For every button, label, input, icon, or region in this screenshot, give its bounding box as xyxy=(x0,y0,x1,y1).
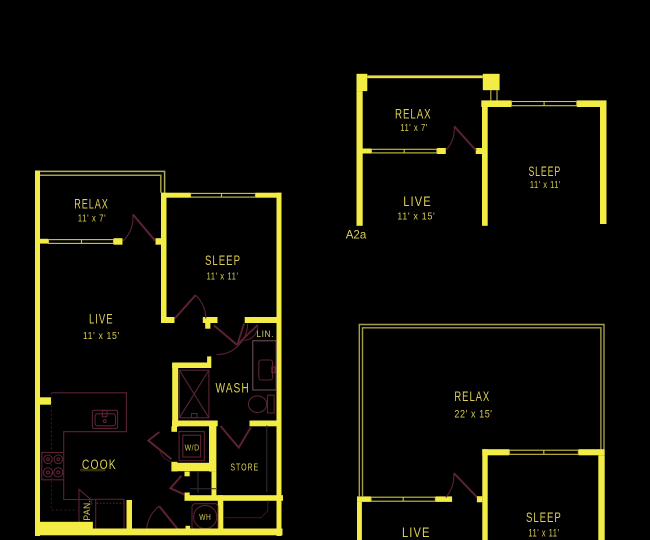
svg-text:RELAX: RELAX xyxy=(454,388,490,404)
svg-text:LIN.: LIN. xyxy=(256,329,274,340)
svg-text:LIVE: LIVE xyxy=(89,311,114,326)
svg-text:11' x 11': 11' x 11' xyxy=(528,527,559,539)
svg-text:11' x 7': 11' x 7' xyxy=(400,122,428,134)
svg-text:SLEEP: SLEEP xyxy=(528,163,561,179)
svg-text:SLEEP: SLEEP xyxy=(526,509,562,525)
svg-text:RELAX: RELAX xyxy=(74,197,109,212)
svg-text:STORE: STORE xyxy=(230,461,259,473)
svg-text:LIVE: LIVE xyxy=(403,193,432,209)
svg-text:PAN.: PAN. xyxy=(82,500,93,521)
svg-text:11' x 7': 11' x 7' xyxy=(78,213,106,224)
svg-text:SLEEP: SLEEP xyxy=(205,253,241,268)
svg-text:11' x 15': 11' x 15' xyxy=(83,331,120,342)
svg-text:11' x 11': 11' x 11' xyxy=(530,179,561,191)
svg-text:11' x 11': 11' x 11' xyxy=(207,272,239,283)
svg-text:11' x 15': 11' x 15' xyxy=(397,211,435,223)
svg-text:22' x 15': 22' x 15' xyxy=(454,409,492,421)
svg-text:RELAX: RELAX xyxy=(395,106,432,122)
svg-text:A2a: A2a xyxy=(346,227,367,241)
svg-text:W/D: W/D xyxy=(185,443,200,453)
svg-text:WH: WH xyxy=(199,512,211,522)
svg-text:WASH: WASH xyxy=(215,381,249,396)
svg-text:LIVE: LIVE xyxy=(402,524,431,540)
